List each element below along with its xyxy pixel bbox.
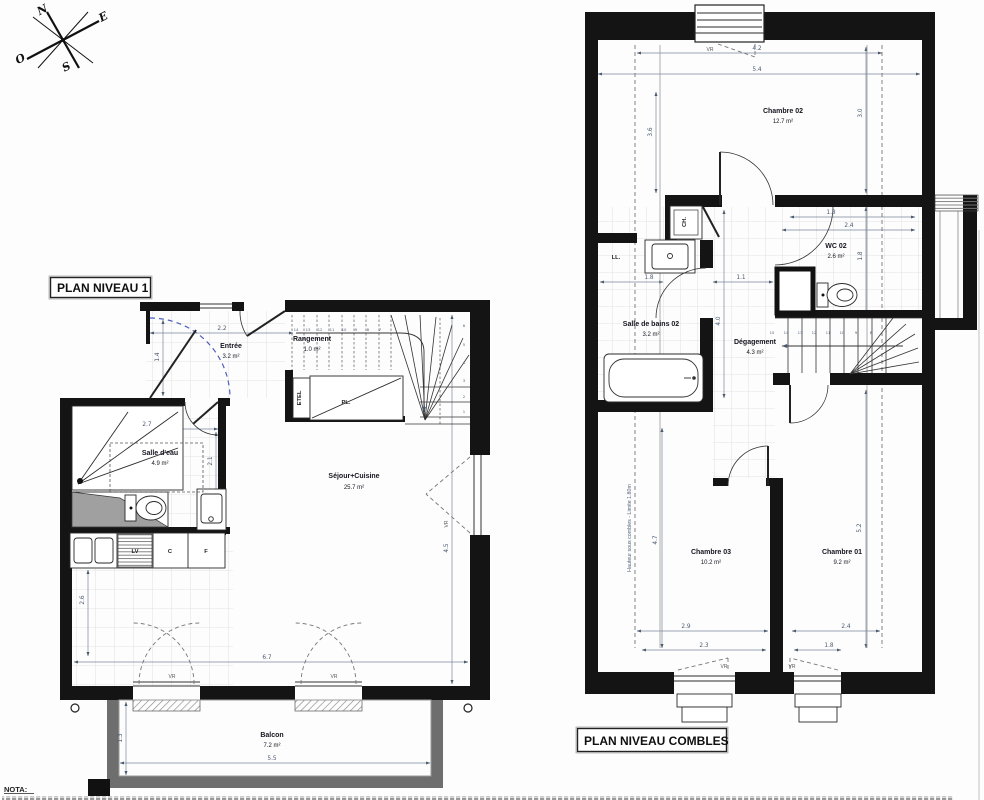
svg-text:6.7: 6.7 (262, 655, 272, 661)
degagement-area: 4.3 m² (746, 350, 763, 356)
svg-text:4.7: 4.7 (653, 535, 659, 545)
chambre02-name: Chambre 02 (763, 108, 803, 115)
svg-text:13: 13 (306, 327, 311, 332)
rangement-area: 1.0 m² (303, 347, 320, 353)
svg-text:1.8: 1.8 (858, 251, 864, 261)
plan-niveau-combles: Hauteur sous combles - Limite 1.80m VR V… (585, 5, 978, 722)
svg-text:9: 9 (855, 330, 858, 335)
svg-text:7: 7 (885, 330, 888, 335)
toilet-wc02 (817, 283, 857, 307)
duct-box (777, 269, 813, 313)
svg-text:2: 2 (463, 394, 466, 399)
drain-marker-right (464, 704, 472, 712)
sous-combles-note: Hauteur sous combles - Limite 1.80m (627, 484, 633, 572)
stair-numbers-combles: 151413121110987 (770, 330, 888, 335)
floorplan-page: N E O S (0, 0, 984, 800)
svg-text:5: 5 (463, 342, 466, 347)
boiler-label: CH. (682, 217, 688, 227)
sejour-name: Séjour+Cuisine (328, 473, 379, 480)
svg-text:2.9: 2.9 (681, 624, 691, 630)
svg-text:5.2: 5.2 (857, 523, 863, 533)
vr-door-left: VR (169, 674, 176, 680)
svg-text:1: 1 (463, 409, 466, 414)
vr-window-bottom-right: VR (789, 664, 796, 670)
sejour-area: 25.7 m² (344, 485, 364, 491)
combles-title-text: PLAN NIVEAU COMBLES (584, 734, 729, 748)
svg-text:4.0: 4.0 (716, 316, 722, 326)
svg-text:8: 8 (367, 327, 370, 332)
salle-deau-name: Salle d'eau (142, 450, 178, 457)
svg-text:2.2: 2.2 (217, 326, 227, 332)
etel-label: ETEL (297, 390, 303, 405)
svg-text:3.6: 3.6 (648, 127, 654, 137)
title-combles: PLAN NIVEAU COMBLES (576, 727, 729, 753)
vr-window-top: VR (707, 47, 714, 53)
washing-machine-label: LL. (612, 255, 621, 261)
door-sill-left (133, 700, 200, 711)
vr-window-right: VR (444, 520, 450, 527)
chambre02-area: 12.7 m² (773, 119, 793, 125)
staircase-combles: 151413121110987 (770, 318, 922, 374)
svg-text:1.8: 1.8 (824, 643, 834, 649)
kitchen-counter: LV C F (70, 533, 225, 568)
washbasin-combles (645, 236, 695, 273)
clipped-text-strip (2, 797, 954, 800)
toilet-level1 (125, 495, 166, 521)
chambre01-name: Chambre 01 (822, 549, 862, 556)
svg-text:6: 6 (463, 323, 466, 328)
vr-window-bottom-left: VR (721, 664, 728, 670)
svg-text:11: 11 (826, 330, 831, 335)
washbasin-level1 (197, 489, 226, 530)
svg-text:13: 13 (798, 330, 803, 335)
compass-rose: N E O S (13, 1, 111, 74)
chambre03-name: Chambre 03 (691, 549, 731, 556)
svg-text:14: 14 (294, 327, 299, 332)
svg-text:5.5: 5.5 (267, 756, 277, 762)
balcon-area: 7.2 m² (263, 743, 280, 749)
stair-numbers-winder: 654321 (463, 323, 466, 414)
title-plan1: PLAN NIVEAU 1 (49, 276, 152, 299)
svg-text:1.1: 1.1 (736, 275, 746, 281)
bathtub (604, 354, 703, 402)
boiler-closet: CH. (670, 206, 702, 239)
svg-text:2.7: 2.7 (142, 422, 152, 428)
shower (72, 406, 183, 490)
chambre01-area: 9.2 m² (833, 560, 850, 566)
window-top-entrance (200, 304, 232, 308)
svg-text:1.8: 1.8 (826, 210, 836, 216)
section-block (88, 779, 110, 796)
svg-text:3: 3 (463, 378, 466, 383)
degagement-name: Dégagement (734, 339, 777, 346)
svg-text:7: 7 (379, 327, 382, 332)
svg-text:10: 10 (840, 330, 845, 335)
entree-name: Entrée (220, 343, 242, 350)
vr-door-right: VR (331, 674, 338, 680)
svg-text:4.5: 4.5 (444, 543, 450, 553)
svg-text:1.4: 1.4 (155, 352, 161, 362)
balcon-name: Balcon (260, 732, 283, 739)
svg-text:2.1: 2.1 (208, 456, 214, 466)
svg-text:2.3: 2.3 (699, 643, 709, 649)
svg-text:5.4: 5.4 (752, 67, 762, 73)
svg-text:2.4: 2.4 (844, 223, 854, 229)
plan1-title-text: PLAN NIVEAU 1 (57, 281, 149, 295)
window-bottom-right (790, 658, 841, 722)
salle-deau-area: 4.9 m² (151, 461, 168, 467)
sdb02-name: Salle de bains 02 (623, 321, 680, 328)
stair-numbers-upper: 1413121110987 (294, 327, 382, 332)
svg-text:9: 9 (355, 327, 358, 332)
svg-text:1.3: 1.3 (118, 733, 124, 743)
svg-text:12: 12 (812, 330, 817, 335)
svg-text:15: 15 (770, 330, 775, 335)
svg-text:14: 14 (784, 330, 789, 335)
wc02-name: WC 02 (825, 243, 847, 250)
chambre03-area: 10.2 m² (701, 560, 721, 566)
compass-south-label: S (60, 59, 73, 74)
rangement-name: Rangement (293, 336, 332, 343)
door-sill-right (295, 700, 362, 711)
fridge-label: F (204, 549, 208, 555)
kitchen-sink (74, 538, 92, 563)
svg-text:2.4: 2.4 (841, 624, 851, 630)
drain-marker-left (71, 704, 79, 712)
svg-text:11: 11 (330, 327, 335, 332)
svg-text:1.8: 1.8 (644, 275, 654, 281)
plan-niveau-1: 1413121110987 654321 ETEL PL. (60, 300, 490, 796)
compass-west-label: O (13, 51, 28, 67)
svg-text:2.6: 2.6 (80, 595, 86, 605)
dishwasher-label: LV (132, 549, 139, 555)
svg-text:4.2: 4.2 (752, 46, 762, 52)
window-sejour-right (474, 455, 481, 535)
placard-label: PL. (341, 400, 350, 406)
entree-area: 3.2 m² (222, 354, 239, 360)
svg-text:10: 10 (342, 327, 347, 332)
sdb02-area: 3.2 m² (642, 332, 659, 338)
nota-label: NOTA: (4, 785, 27, 794)
svg-text:3.0: 3.0 (858, 108, 864, 118)
svg-text:12: 12 (318, 327, 323, 332)
wc02-area: 2.6 m² (827, 254, 844, 260)
